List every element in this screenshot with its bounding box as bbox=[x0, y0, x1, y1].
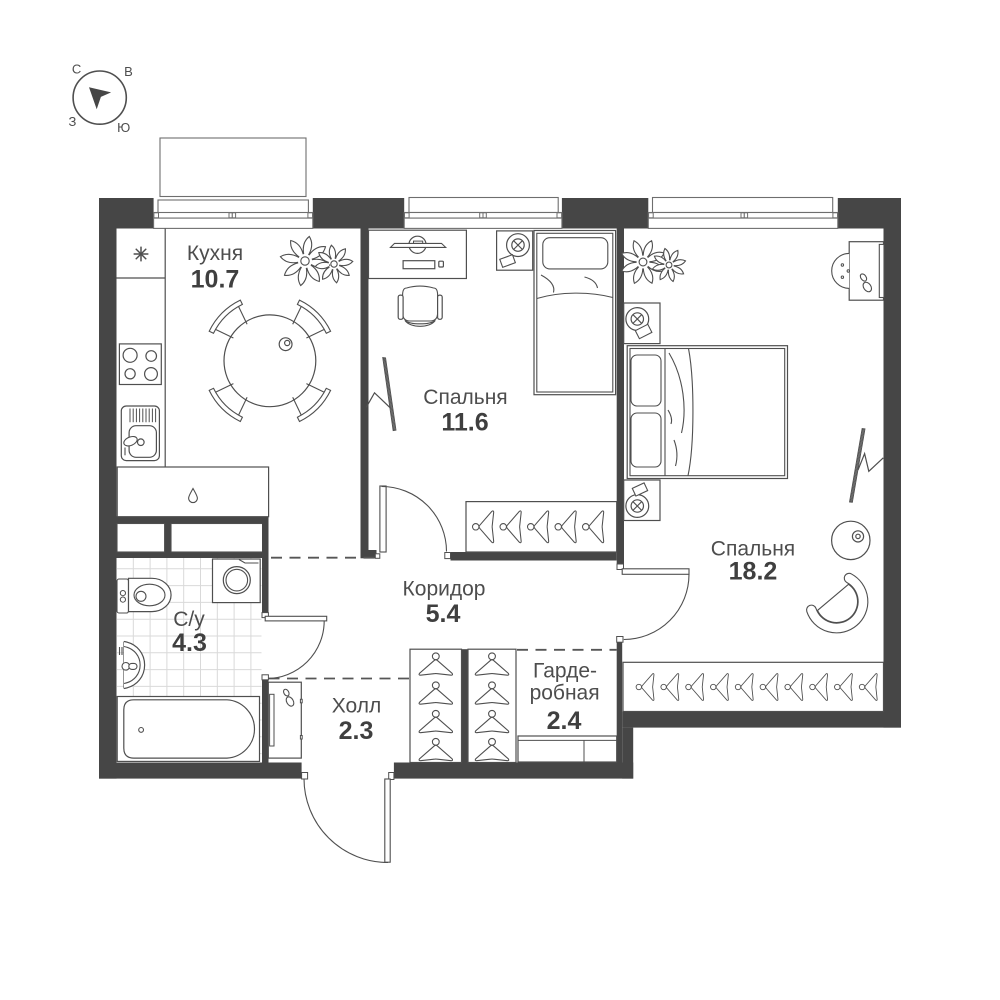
svg-text:4.3: 4.3 bbox=[172, 629, 207, 657]
svg-text:10.7: 10.7 bbox=[191, 266, 240, 294]
svg-text:Холл: Холл bbox=[332, 695, 382, 718]
svg-text:Гарде-: Гарде- bbox=[533, 659, 597, 682]
svg-text:робная: робная bbox=[530, 682, 600, 705]
svg-text:Ю: Ю bbox=[117, 120, 130, 135]
svg-text:С: С bbox=[72, 62, 81, 77]
svg-text:2.3: 2.3 bbox=[339, 717, 374, 745]
svg-text:2.4: 2.4 bbox=[547, 707, 582, 735]
svg-text:В: В bbox=[124, 64, 133, 79]
svg-text:Коридор: Коридор bbox=[403, 578, 486, 601]
svg-text:С/у: С/у bbox=[173, 608, 205, 631]
svg-text:З: З bbox=[68, 114, 76, 129]
svg-text:18.2: 18.2 bbox=[729, 558, 778, 586]
svg-text:5.4: 5.4 bbox=[426, 600, 461, 628]
svg-text:Спальня: Спальня bbox=[423, 386, 507, 409]
svg-text:11.6: 11.6 bbox=[441, 408, 488, 436]
svg-text:Кухня: Кухня bbox=[187, 242, 243, 265]
